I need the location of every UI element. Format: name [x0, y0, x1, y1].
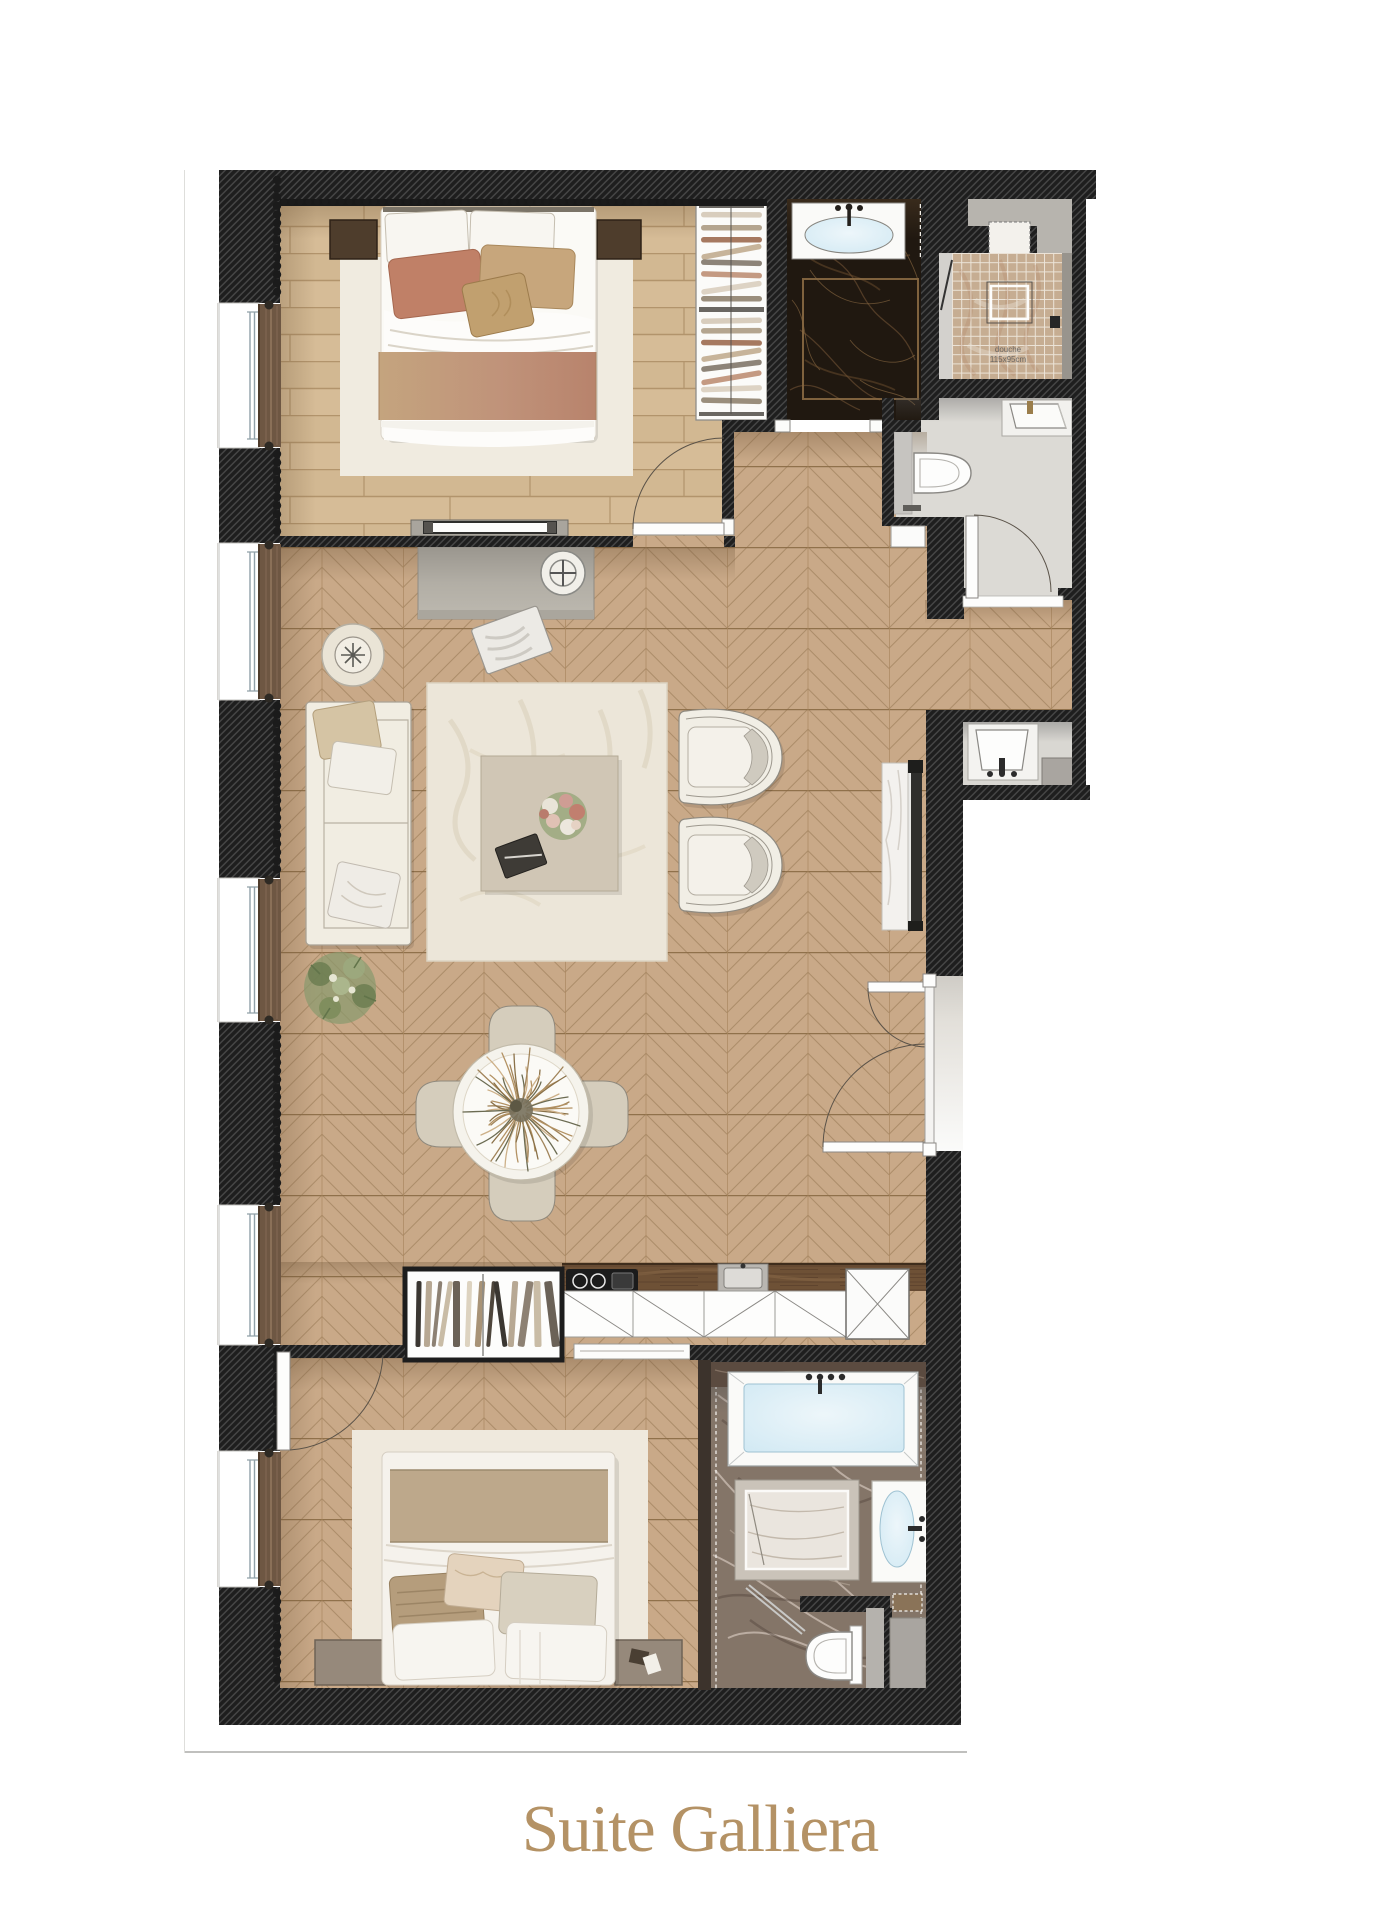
svg-text:Suite Galliera: Suite Galliera: [522, 1792, 878, 1866]
svg-text:douche: douche: [995, 345, 1022, 354]
svg-text:115x95cm: 115x95cm: [990, 355, 1027, 364]
